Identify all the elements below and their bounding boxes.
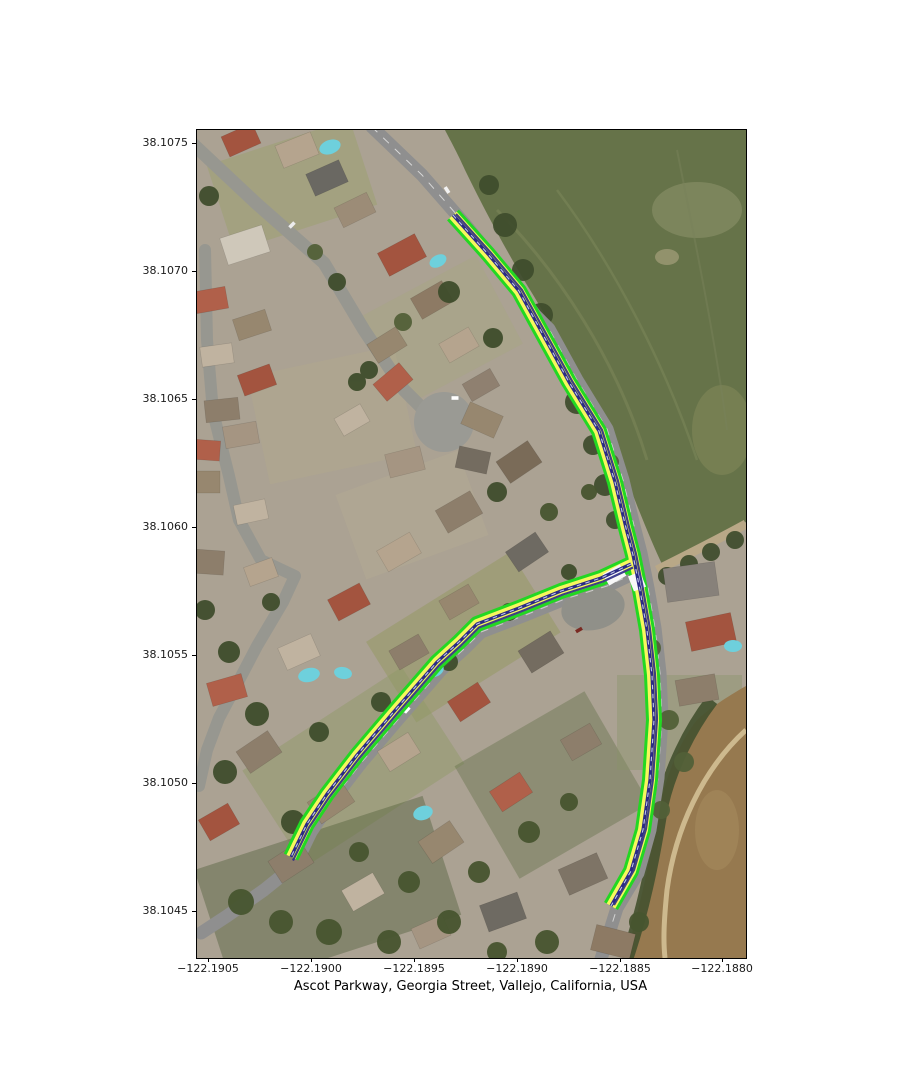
y-tick-mark [192, 143, 196, 144]
x-tick-label: −122.1885 [589, 962, 651, 975]
x-tick-label: −122.1890 [486, 962, 548, 975]
x-tick-label: −122.1880 [691, 962, 753, 975]
y-tick-label: 38.1050 [143, 776, 189, 789]
y-tick-label: 38.1065 [143, 392, 189, 405]
x-tick-mark [620, 958, 621, 962]
map-plot-area [196, 129, 747, 959]
x-tick-mark [208, 958, 209, 962]
y-tick-label: 38.1060 [143, 520, 189, 533]
y-tick-mark [192, 271, 196, 272]
y-tick-mark [192, 527, 196, 528]
y-tick-label: 38.1045 [143, 904, 189, 917]
x-axis-label: Ascot Parkway, Georgia Street, Vallejo, … [196, 979, 745, 994]
x-tick-mark [414, 958, 415, 962]
x-tick-mark [517, 958, 518, 962]
y-tick-mark [192, 399, 196, 400]
satellite-image [197, 130, 746, 958]
x-tick-label: −122.1895 [383, 962, 445, 975]
map-figure: 38.1075 38.1070 38.1065 38.1060 38.1055 … [0, 0, 915, 1080]
y-tick-mark [192, 911, 196, 912]
y-tick-label: 38.1070 [143, 264, 189, 277]
y-tick-mark [192, 783, 196, 784]
x-tick-mark [722, 958, 723, 962]
x-tick-label: −122.1900 [280, 962, 342, 975]
x-tick-mark [311, 958, 312, 962]
y-tick-label: 38.1055 [143, 648, 189, 661]
y-tick-label: 38.1075 [143, 136, 189, 149]
y-tick-mark [192, 655, 196, 656]
x-tick-label: −122.1905 [177, 962, 239, 975]
